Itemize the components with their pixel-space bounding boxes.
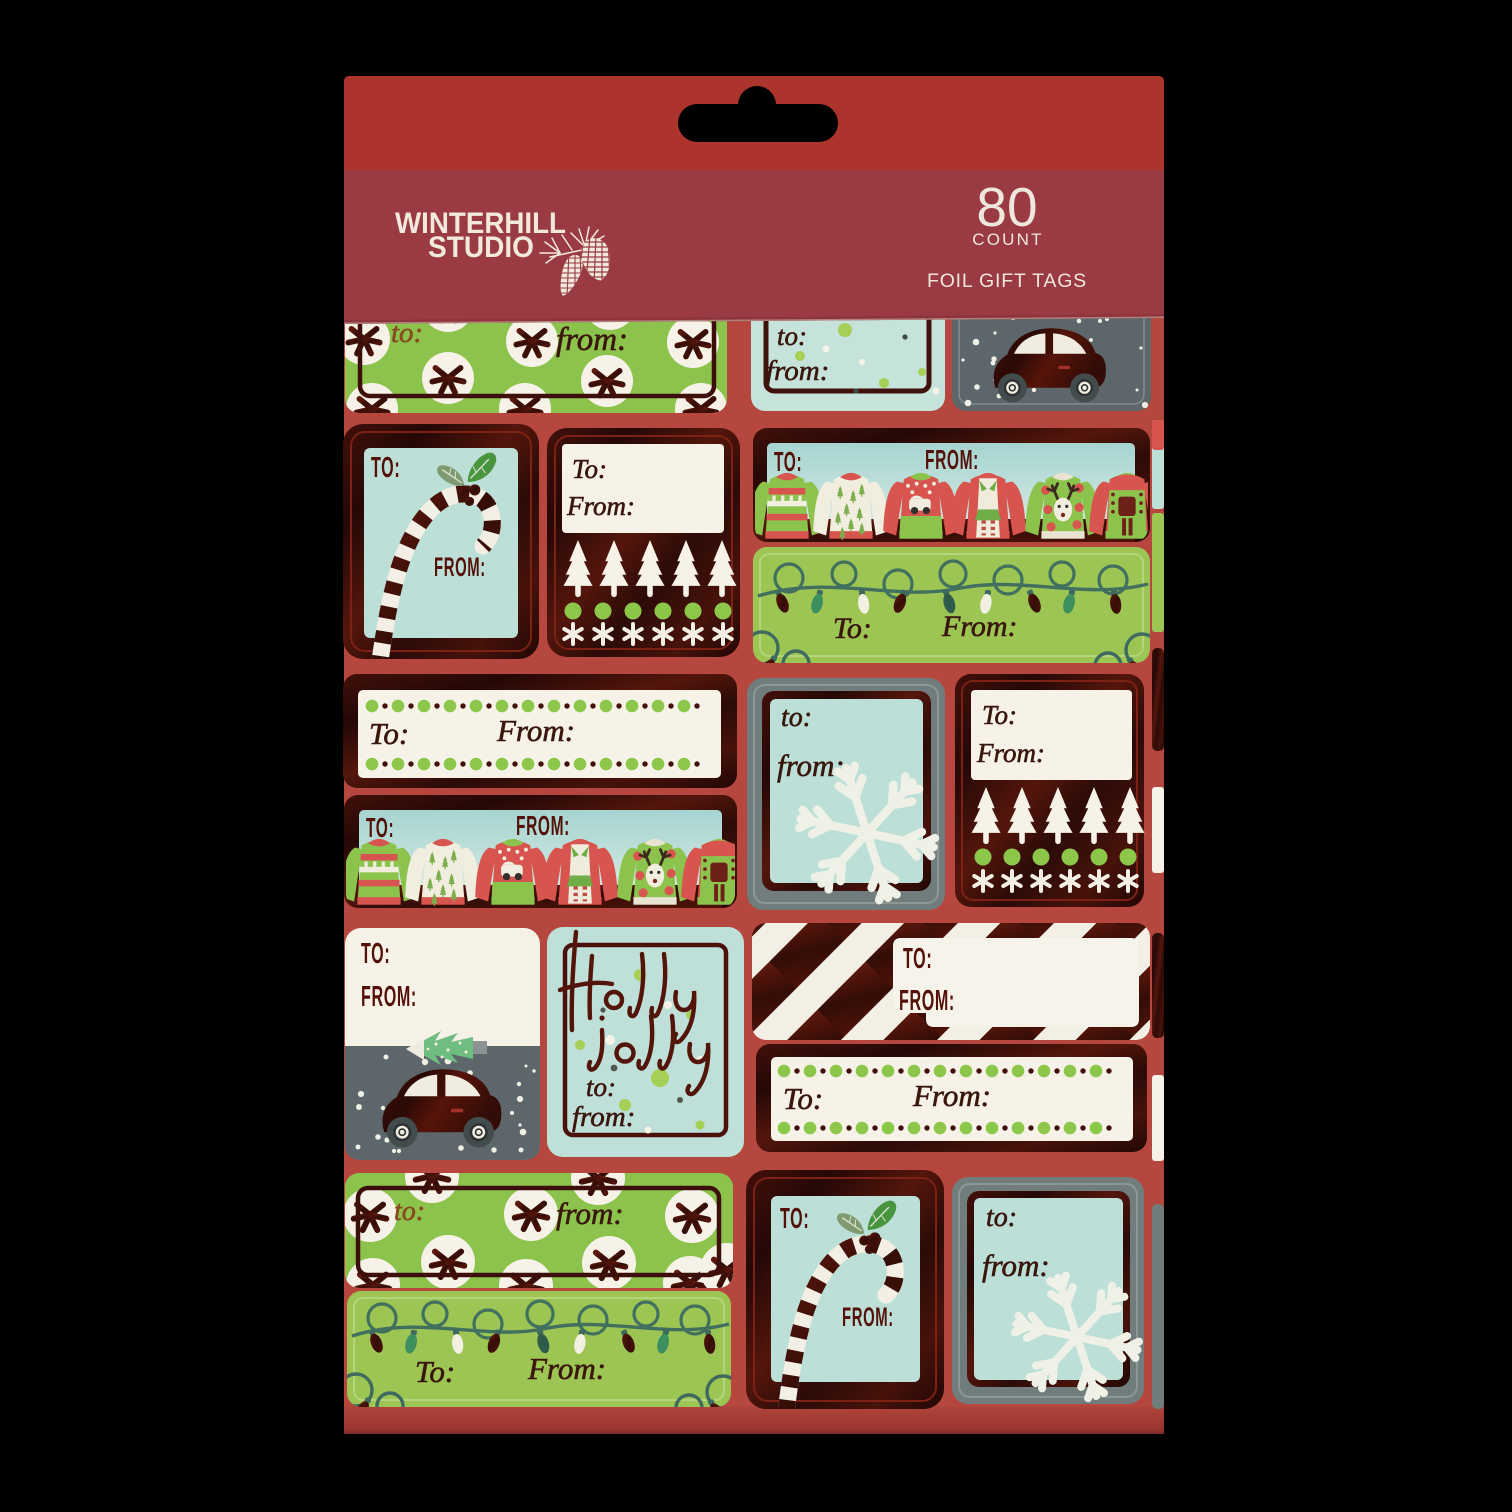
svg-text:to:: to: (394, 1196, 425, 1227)
svg-text:To:: To: (572, 454, 607, 484)
svg-text:from:: from: (556, 1196, 624, 1231)
svg-text:80: 80 (976, 176, 1037, 238)
svg-text:TO:: TO: (774, 446, 802, 477)
svg-text:From:: From: (941, 610, 1018, 643)
svg-text:from:: from: (982, 1248, 1050, 1283)
svg-text:From:: From: (527, 1351, 606, 1386)
svg-text:FOIL GIFT TAGS: FOIL GIFT TAGS (927, 270, 1087, 292)
svg-text:To:: To: (369, 716, 409, 751)
svg-text:TO:: TO: (366, 812, 394, 843)
svg-text:From:: From: (912, 1078, 991, 1113)
svg-text:to:: to: (777, 321, 807, 351)
svg-text:from:: from: (572, 1101, 635, 1133)
svg-text:To:: To: (833, 612, 872, 645)
svg-text:FROM:: FROM: (925, 444, 979, 475)
svg-text:From:: From: (976, 738, 1045, 768)
svg-text:to:: to: (781, 702, 812, 733)
svg-text:from:: from: (777, 748, 845, 783)
svg-text:COUNT: COUNT (972, 230, 1043, 249)
svg-text:To:: To: (415, 1354, 455, 1389)
svg-text:to:: to: (586, 1072, 616, 1102)
svg-text:To:: To: (982, 700, 1017, 730)
svg-text:FROM:: FROM: (899, 984, 955, 1016)
svg-text:from:: from: (556, 322, 628, 358)
svg-text:FROM:: FROM: (361, 980, 417, 1012)
svg-text:TO:: TO: (371, 451, 400, 483)
svg-text:FROM:: FROM: (516, 810, 570, 841)
svg-text:to:: to: (986, 1202, 1017, 1233)
svg-text:To:: To: (783, 1081, 823, 1116)
svg-text:TO:: TO: (361, 937, 390, 969)
svg-text:From:: From: (496, 713, 575, 748)
svg-text:FROM:: FROM: (434, 551, 486, 582)
svg-text:TO:: TO: (780, 1202, 809, 1234)
svg-text:STUDIO: STUDIO (428, 231, 534, 264)
svg-text:TO:: TO: (903, 942, 932, 974)
svg-text:FROM:: FROM: (842, 1301, 894, 1332)
svg-text:From:: From: (566, 491, 635, 521)
